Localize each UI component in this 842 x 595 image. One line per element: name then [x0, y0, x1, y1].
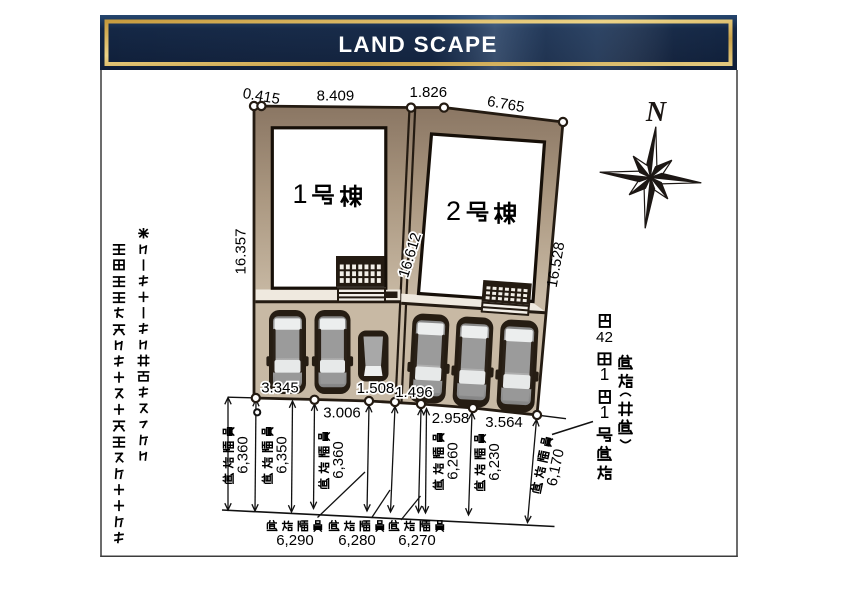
svg-text:1: 1: [600, 365, 610, 384]
svg-text:1: 1: [600, 403, 610, 422]
svg-text:16.357: 16.357: [233, 229, 250, 275]
svg-text:6,170: 6,170: [544, 447, 568, 487]
svg-text:2.958: 2.958: [432, 410, 470, 427]
svg-text:6,260: 6,260: [444, 442, 461, 480]
svg-text:LAND SCAPE: LAND SCAPE: [338, 32, 497, 57]
svg-text:3.006: 3.006: [323, 405, 361, 422]
svg-text:N: N: [645, 97, 668, 128]
svg-text:1: 1: [292, 179, 307, 209]
svg-text:6,270: 6,270: [398, 532, 436, 549]
svg-text:42: 42: [596, 330, 613, 346]
svg-text:6,360: 6,360: [234, 436, 251, 474]
svg-text:1.508: 1.508: [357, 380, 395, 397]
svg-text:1.496: 1.496: [395, 384, 433, 401]
svg-text:6,280: 6,280: [338, 532, 376, 549]
svg-text:8.409: 8.409: [317, 88, 355, 105]
svg-text:0.415: 0.415: [241, 85, 281, 108]
svg-text:3.564: 3.564: [485, 414, 523, 431]
svg-text:2: 2: [446, 196, 461, 226]
svg-text:6,360: 6,360: [330, 441, 347, 479]
svg-text:3.345: 3.345: [261, 380, 299, 397]
svg-text:6,230: 6,230: [486, 443, 503, 481]
svg-text:6,290: 6,290: [276, 532, 314, 549]
svg-text:6,350: 6,350: [273, 436, 290, 474]
svg-text:1.826: 1.826: [410, 84, 448, 101]
